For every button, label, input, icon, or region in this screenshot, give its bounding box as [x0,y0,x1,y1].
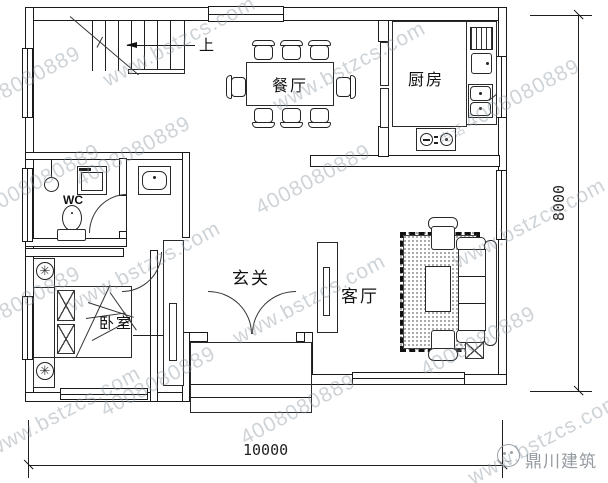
dining-chair [307,40,332,60]
logo-company-name: 鼎川建筑 [525,447,597,472]
wall-mid-horizontal [310,155,500,167]
entry-door-arc [252,291,296,334]
dining-chair [279,108,304,128]
dining-room-label: 餐厅 [272,72,308,96]
drain-rack-icon [470,27,493,50]
dining-chair [251,40,276,60]
armchair-seat [431,226,455,250]
wall-kitchen-left-upper [378,20,389,42]
door-leaf [126,194,127,233]
dining-chair [226,74,246,100]
sofa-armrest [456,329,486,343]
entry-porch [190,342,312,413]
sofa-seats [458,249,486,331]
watermark-text: 4008080889 [0,42,85,123]
living-room-label: 客厅 [341,282,379,307]
entry-door-arc [208,291,252,334]
dining-chair [251,108,276,128]
watermark-text: 4008080889 [252,140,375,221]
stairs-arrow-icon [126,42,137,48]
window [22,48,33,118]
plant-icon: ✳ [36,262,54,280]
window [22,168,33,242]
watermark-text: www.bstzcs.com [0,362,145,463]
porch-step [191,384,311,385]
porch-step [191,397,311,398]
dimension-height-label: 8000 [550,180,568,226]
pillow [57,324,75,354]
pillow [57,290,75,321]
wall-bedroom-top [25,248,124,257]
coffee-table [425,266,451,312]
dining-chair [279,40,304,60]
window [496,170,507,240]
dining-table: 餐厅 [246,62,334,106]
dining-chair [336,74,356,100]
toilet-tank [57,229,86,241]
armchair-back [428,348,458,361]
shower-hose [51,160,52,178]
window [60,388,148,400]
kitchen-room-label: 厨房 [408,66,444,90]
shower-head-icon [44,177,59,192]
dimension-line-vertical [578,15,579,392]
wall-nook-right [182,152,190,238]
plant-icon: ✳ [36,362,54,380]
kitchen-sliding-door [380,88,389,128]
logo-icon [497,444,520,467]
window [496,56,507,118]
dimension-line-horizontal [28,465,503,466]
window [352,372,465,385]
window [22,296,33,360]
window [208,6,284,22]
wc-room-label: WC [63,193,83,207]
floor-plan: 上 餐厅 厨房 WC 玄关 [0,0,608,483]
stairs-up-label: 上 [199,34,216,55]
dimension-width-label: 10000 [243,441,288,459]
wall-wc-row-top [25,152,190,160]
hall-room-label: 玄关 [232,264,270,289]
hall-cabinet-door [169,303,177,361]
wall-kitchen-left-lower [378,126,389,157]
kitchen-sliding-door [380,42,389,86]
wall-wc-right-upper [119,158,127,196]
tv-screen [323,267,330,316]
bedroom-room-label: 卧室 [99,312,133,333]
toilet [62,205,82,231]
dining-chair [307,108,332,128]
stairs-direction-line [127,45,195,46]
door-arc [89,194,127,233]
side-table [465,342,484,359]
